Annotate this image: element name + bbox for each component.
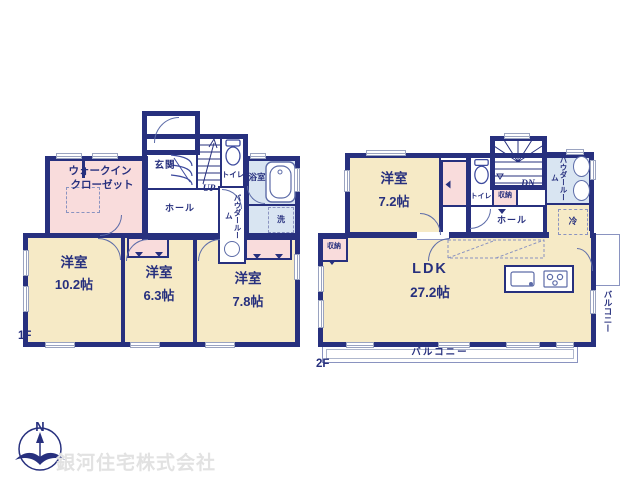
stairs-up-icon: [197, 137, 221, 187]
window: [294, 168, 300, 192]
closet-door-mark: [155, 252, 163, 257]
wic-label-line2: クローゼット: [60, 180, 144, 192]
closet-door-mark: [498, 209, 506, 214]
window: [590, 160, 596, 180]
ldk-name: LDK: [390, 262, 470, 278]
window: [23, 286, 29, 312]
storage-by-stairs-label: 収納: [491, 192, 519, 200]
window: [130, 342, 160, 348]
washbasin-icon-2f: [573, 156, 590, 177]
window: [346, 342, 374, 348]
window: [504, 133, 530, 139]
window: [556, 342, 574, 348]
wic-label-line1: ウォークイン: [58, 166, 142, 178]
window: [56, 153, 82, 159]
floor1-label: 1F: [18, 330, 48, 343]
washbasin-icon-2f: [573, 180, 590, 201]
stairs-up-label: UP: [196, 184, 222, 194]
window: [205, 342, 235, 348]
hall-label-2f: ホール: [489, 216, 535, 226]
washer-space: 洗: [268, 207, 294, 233]
bedroom1-size: 10.2帖: [34, 278, 114, 292]
balcony-east: [594, 234, 620, 286]
bedroom3-size: 7.8帖: [206, 295, 290, 309]
floorplan-canvas: 洗 玄関 UP トイレ 浴室 パウダールーム ホール ウォークイン: [0, 0, 640, 480]
ldk-size: 27.2帖: [386, 286, 474, 301]
toilet-icon-2f: [471, 158, 492, 186]
bedroom3-name: 洋室: [206, 272, 290, 287]
closet-door-mark: [253, 254, 261, 259]
powder-room-label-2f: パウダールーム: [547, 155, 567, 201]
floor2-label: 2F: [316, 358, 346, 371]
entrance-label: 玄関: [144, 161, 186, 171]
bedroom-2f-name: 洋室: [350, 172, 438, 187]
window: [23, 250, 29, 276]
window: [566, 149, 584, 155]
window: [590, 290, 596, 314]
refrigerator-label: 冷: [569, 217, 578, 226]
window: [92, 153, 118, 159]
window: [318, 300, 324, 328]
under-stairs-dashed-area: [447, 239, 545, 259]
refrigerator-space: 冷: [558, 209, 588, 235]
bath-label: 浴室: [243, 173, 271, 182]
closet-door-mark: [135, 252, 143, 257]
balcony-east-label: バルコニー: [597, 284, 612, 338]
stairs-down-label: DN: [514, 179, 542, 189]
closet-door-mark: [446, 181, 451, 189]
bedroom-2f-size: 7.2帖: [350, 195, 438, 209]
company-watermark: 銀河住宅株式会社: [56, 448, 216, 475]
washbasin-icon-1f: [224, 241, 240, 257]
closet-door-mark: [328, 260, 336, 265]
bedroom1-name: 洋室: [34, 256, 114, 271]
kitchen-counter-icon: [504, 265, 574, 293]
powder-room-label-1f: パウダールーム: [223, 192, 241, 240]
window: [294, 254, 300, 280]
storage-left-label: 収納: [319, 243, 349, 251]
hall-label-1f: ホール: [156, 204, 204, 214]
window: [250, 153, 266, 159]
window: [45, 342, 75, 348]
window: [506, 342, 540, 348]
washer-label: 洗: [277, 216, 285, 225]
toilet-icon-1f: [222, 139, 244, 167]
window: [318, 266, 324, 292]
closet-door-mark: [275, 254, 283, 259]
compass-north-letter: N: [35, 419, 44, 434]
balcony-south-label: バルコニー: [400, 348, 480, 358]
bedroom2-name: 洋室: [119, 266, 199, 281]
window: [366, 150, 406, 156]
bedroom2-size: 6.3帖: [119, 289, 199, 303]
